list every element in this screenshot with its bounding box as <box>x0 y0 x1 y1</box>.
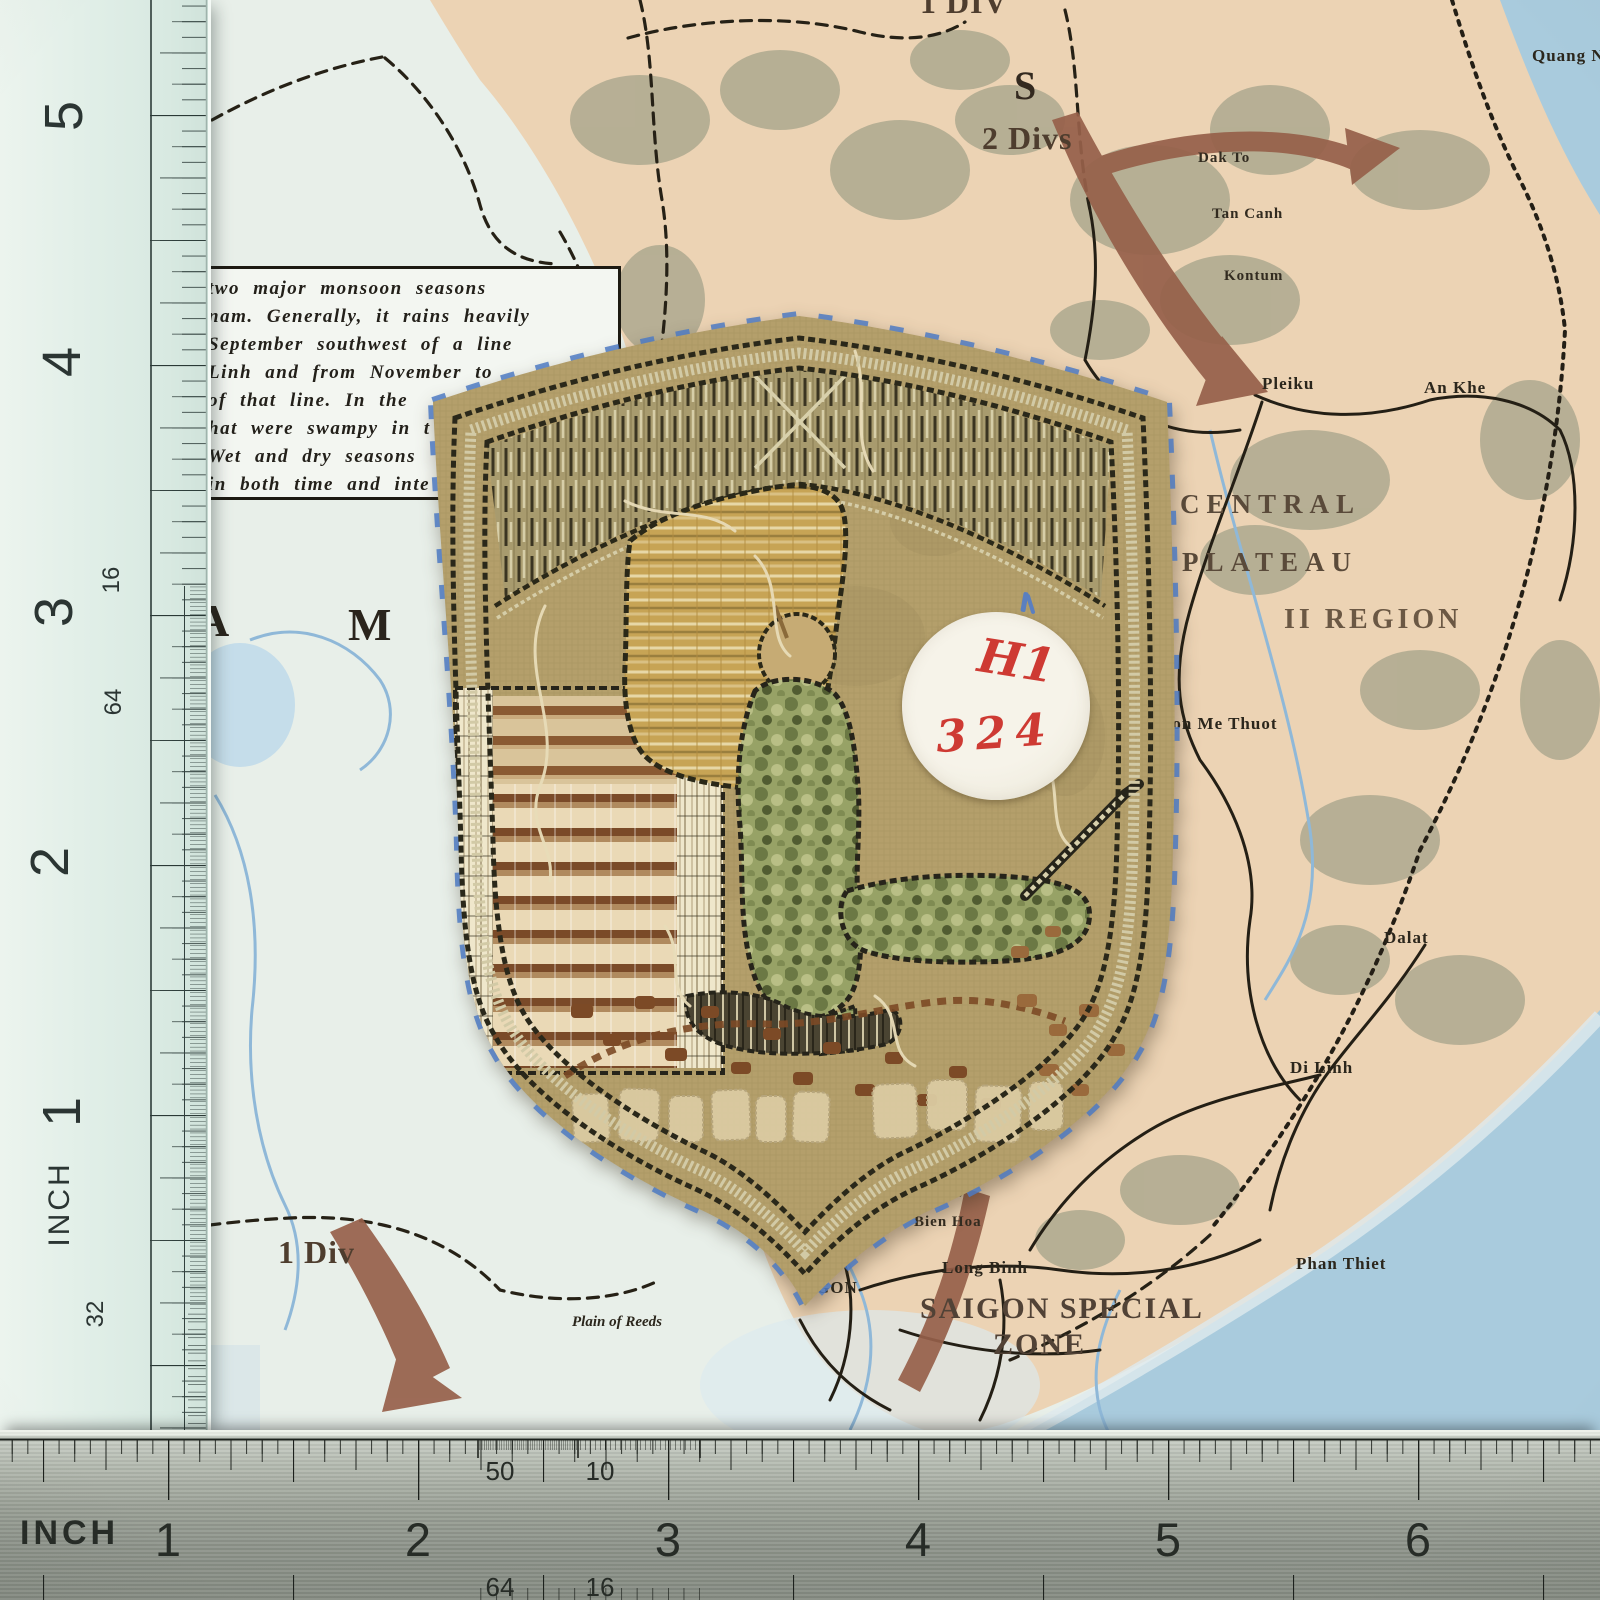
inventory-sticker: H1 324 <box>902 612 1090 800</box>
map-label-central: CENTRAL <box>1180 489 1361 520</box>
map-label-ii-region: II REGION <box>1284 604 1462 636</box>
map-label-tancanh: Tan Canh <box>1212 206 1283 223</box>
left-ruler-scale-16: 16 <box>98 567 126 594</box>
map-label-ankhe: An Khe <box>1424 378 1486 398</box>
left-ruler-number-1: 1 <box>31 1097 93 1127</box>
embroidered-patch-back <box>425 306 1185 1320</box>
map-label-s: S <box>1014 62 1036 109</box>
vertical-inch-ruler: 5 4 3 2 1 16 64 32 INCH <box>0 0 211 1438</box>
map-label-1div-top: 1 DIV <box>920 0 1008 21</box>
bottom-ruler-ticks <box>0 1430 1600 1600</box>
left-ruler-number-5: 5 <box>33 101 95 131</box>
bottom-ruler-scale-16: 16 <box>586 1572 615 1600</box>
map-label-plateau: PLATEAU <box>1182 547 1358 578</box>
bottom-ruler-scale-10: 10 <box>586 1456 615 1487</box>
bottom-ruler-number-4: 4 <box>905 1512 931 1567</box>
sticker-code-line1: H1 <box>974 628 1059 694</box>
left-ruler-number-4: 4 <box>31 347 93 377</box>
map-label-dakto: Dak To <box>1198 150 1250 167</box>
left-ruler-unit-label: INCH <box>43 1161 77 1246</box>
bottom-ruler-scale-50: 50 <box>486 1456 515 1487</box>
left-ruler-ticks <box>0 0 211 1438</box>
left-ruler-scale-32: 32 <box>82 1301 110 1328</box>
map-label-phanthiet: Phan Thiet <box>1296 1254 1386 1274</box>
map-label-2divs: 2 Divs <box>982 120 1072 157</box>
map-label-quangngai: Quang Ngai <box>1532 46 1600 66</box>
monsoon-line: two major monsoon seasons <box>196 275 618 303</box>
horizontal-inch-ruler: INCH 1 2 3 4 5 6 50 10 64 16 <box>0 1430 1600 1600</box>
left-ruler-scale-64: 64 <box>100 689 128 716</box>
map-label-letter-m: M <box>348 598 391 651</box>
bottom-ruler-scale-64: 64 <box>486 1572 515 1600</box>
bottom-ruler-number-1: 1 <box>155 1512 181 1567</box>
map-label-dalat: Dalat <box>1384 928 1429 948</box>
photo-of-patch-on-map: two major monsoon seasons nam. Generally… <box>0 0 1600 1600</box>
sticker-code-line2: 324 <box>934 704 1056 763</box>
map-label-dilinh: Di Linh <box>1290 1058 1353 1078</box>
bottom-ruler-number-5: 5 <box>1155 1512 1181 1567</box>
map-label-kontum: Kontum <box>1224 268 1283 285</box>
map-label-zone: ZONE <box>993 1328 1086 1362</box>
bottom-ruler-unit-label: INCH <box>20 1514 119 1553</box>
left-ruler-number-3: 3 <box>23 597 85 627</box>
map-label-pleiku: Pleiku <box>1262 374 1314 394</box>
left-ruler-number-2: 2 <box>19 847 81 877</box>
bottom-ruler-number-2: 2 <box>405 1512 431 1567</box>
map-label-1div-bottom: 1 Div <box>278 1234 355 1271</box>
bottom-ruler-number-6: 6 <box>1405 1512 1431 1567</box>
bottom-ruler-number-3: 3 <box>655 1512 681 1567</box>
